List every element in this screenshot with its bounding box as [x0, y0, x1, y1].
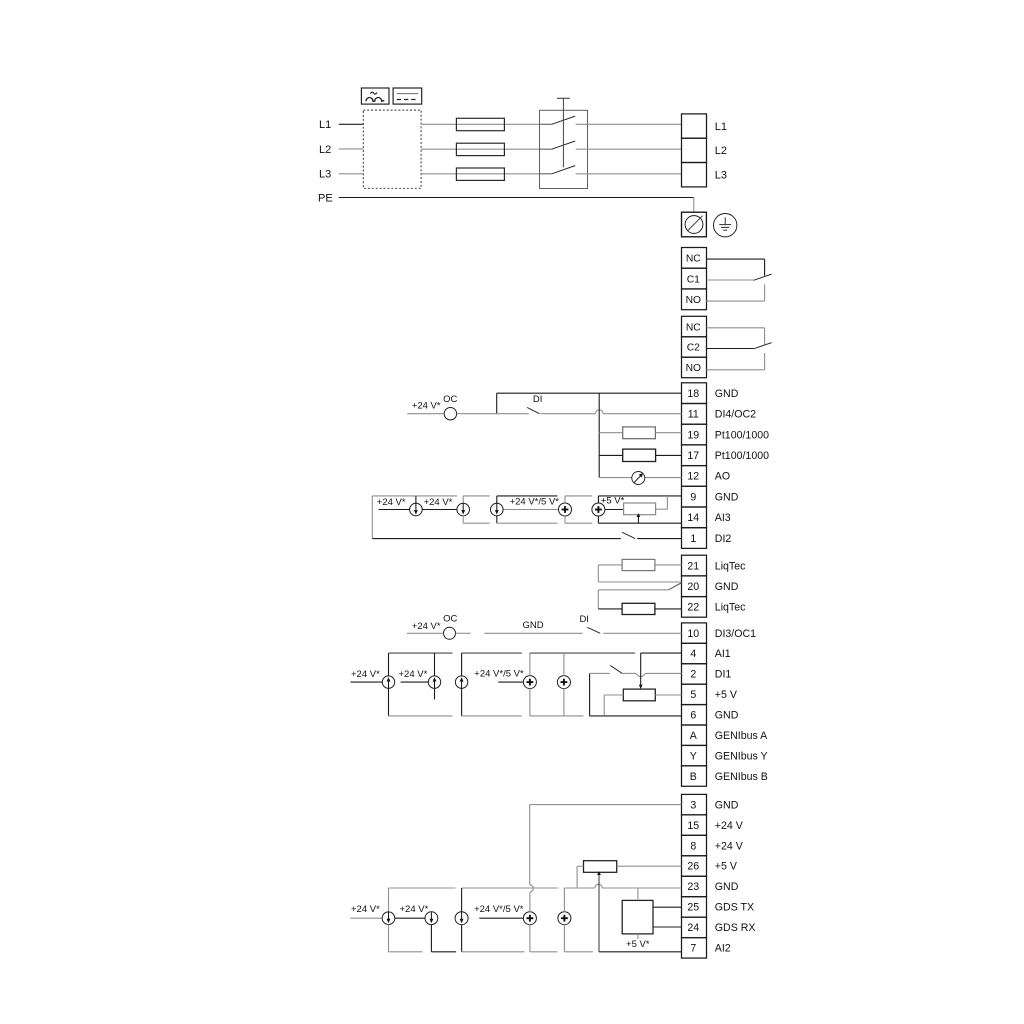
svg-text:GND: GND — [715, 799, 739, 811]
svg-text:Y: Y — [690, 750, 697, 762]
svg-text:23: 23 — [687, 881, 699, 893]
svg-text:AO: AO — [715, 471, 730, 483]
svg-text:NC: NC — [686, 322, 701, 333]
svg-text:L1: L1 — [319, 119, 331, 131]
svg-text:Pt100/1000: Pt100/1000 — [715, 429, 769, 441]
svg-text:+24 V*: +24 V* — [424, 497, 453, 508]
svg-text:7: 7 — [690, 943, 696, 955]
svg-text:DI: DI — [533, 394, 543, 405]
svg-text:+5 V*: +5 V* — [601, 496, 625, 507]
svg-text:GND: GND — [522, 620, 543, 631]
svg-text:LiqTec: LiqTec — [715, 602, 746, 614]
svg-text:+24 V*/5 V*: +24 V*/5 V* — [510, 497, 560, 508]
svg-text:+24 V*: +24 V* — [412, 401, 441, 412]
svg-text:+24 V*: +24 V* — [351, 669, 380, 680]
svg-text:OC: OC — [443, 614, 457, 625]
svg-text:L2: L2 — [319, 144, 331, 156]
svg-text:DI3/OC1: DI3/OC1 — [715, 628, 756, 640]
svg-text:+24 V*: +24 V* — [351, 904, 380, 915]
svg-text:15: 15 — [687, 820, 699, 832]
svg-text:GENIbus Y: GENIbus Y — [715, 750, 768, 762]
svg-text:C2: C2 — [687, 343, 700, 354]
svg-text:GND: GND — [715, 709, 739, 721]
svg-text:22: 22 — [687, 602, 699, 614]
svg-text:+24 V*/5 V*: +24 V*/5 V* — [474, 668, 524, 679]
svg-text:11: 11 — [688, 409, 699, 421]
svg-text:+24 V*/5 V*: +24 V*/5 V* — [474, 904, 524, 915]
svg-text:NO: NO — [686, 363, 701, 374]
svg-text:GDS RX: GDS RX — [715, 922, 756, 934]
svg-text:3: 3 — [690, 799, 696, 811]
svg-text:GND: GND — [715, 388, 739, 400]
svg-text:LiqTec: LiqTec — [715, 560, 746, 572]
svg-text:C1: C1 — [687, 274, 700, 285]
svg-text:DI: DI — [579, 614, 589, 625]
svg-text:+24 V*: +24 V* — [399, 669, 428, 680]
svg-text:14: 14 — [687, 512, 699, 524]
svg-text:NO: NO — [686, 295, 701, 306]
svg-text:8: 8 — [690, 840, 696, 852]
svg-text:+5 V*: +5 V* — [626, 939, 650, 950]
svg-text:21: 21 — [687, 560, 699, 572]
svg-text:+24 V*: +24 V* — [377, 497, 406, 508]
svg-text:L3: L3 — [319, 169, 331, 181]
svg-text:AI1: AI1 — [715, 648, 731, 660]
svg-text:+24 V*: +24 V* — [400, 904, 429, 915]
svg-text:17: 17 — [687, 450, 699, 462]
svg-text:4: 4 — [690, 648, 696, 660]
svg-text:AI3: AI3 — [715, 512, 731, 524]
svg-text:L1: L1 — [715, 121, 727, 133]
svg-text:+24 V: +24 V — [715, 820, 744, 832]
svg-text:18: 18 — [687, 388, 699, 400]
svg-text:GENIbus A: GENIbus A — [715, 730, 768, 742]
svg-text:5: 5 — [690, 689, 696, 701]
svg-text:GND: GND — [715, 491, 739, 503]
svg-text:GDS TX: GDS TX — [715, 902, 754, 914]
svg-text:A: A — [690, 730, 698, 742]
svg-text:9: 9 — [690, 491, 696, 503]
svg-text:GND: GND — [715, 581, 739, 593]
svg-text:6: 6 — [690, 709, 696, 721]
svg-text:NC: NC — [686, 254, 701, 265]
svg-text:25: 25 — [687, 902, 699, 914]
svg-text:+24 V: +24 V — [715, 840, 744, 852]
svg-text:L3: L3 — [715, 169, 727, 181]
svg-text:DI4/OC2: DI4/OC2 — [715, 409, 756, 421]
svg-text:GND: GND — [715, 881, 739, 893]
svg-text:24: 24 — [687, 922, 699, 934]
svg-text:+5 V: +5 V — [715, 861, 738, 873]
svg-text:1: 1 — [690, 533, 696, 545]
svg-text:26: 26 — [687, 861, 699, 873]
svg-text:Pt100/1000: Pt100/1000 — [715, 450, 769, 462]
svg-text:AI2: AI2 — [715, 943, 731, 955]
svg-text:+24 V*: +24 V* — [412, 621, 441, 632]
svg-text:DI1: DI1 — [715, 669, 732, 681]
svg-text:GENIbus B: GENIbus B — [715, 771, 768, 783]
svg-text:10: 10 — [687, 628, 699, 640]
svg-text:20: 20 — [687, 581, 699, 593]
svg-text:+5 V: +5 V — [715, 689, 738, 701]
svg-text:DI2: DI2 — [715, 533, 732, 545]
svg-text:L2: L2 — [715, 145, 727, 157]
svg-text:2: 2 — [690, 669, 696, 681]
svg-text:PE: PE — [318, 192, 333, 204]
svg-text:B: B — [690, 771, 697, 783]
svg-text:OC: OC — [443, 394, 457, 405]
svg-text:19: 19 — [687, 429, 699, 441]
svg-text:12: 12 — [687, 471, 699, 483]
